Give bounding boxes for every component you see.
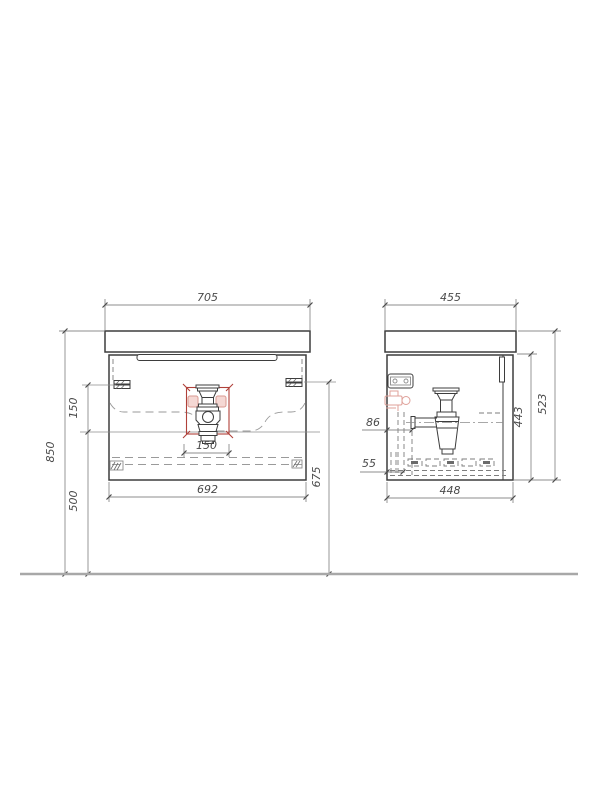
side-dim-cabinet-depth: 448 xyxy=(385,482,516,503)
side-wall-rail xyxy=(500,357,505,382)
dim-label-150-vertical: 150 xyxy=(67,398,80,419)
dim-label-692: 692 xyxy=(197,483,218,496)
dim-label-55: 55 xyxy=(362,457,376,470)
dim-label-705: 705 xyxy=(197,291,218,304)
front-basin-slot xyxy=(137,355,277,361)
front-dim-rail-to-floor: 675 xyxy=(310,380,332,577)
front-dim-overall-height: 850 xyxy=(44,329,104,577)
front-dim-cabinet-width: 692 xyxy=(107,482,309,502)
side-view: 455 448 443 523 xyxy=(360,291,561,503)
drain-mount-hole-left xyxy=(188,396,198,407)
side-countertop xyxy=(385,331,516,352)
side-dim-top-depth: 455 xyxy=(383,291,519,330)
dim-label-850: 850 xyxy=(44,442,57,463)
side-dim-overall-height: 523 xyxy=(518,329,561,483)
front-right-bracket xyxy=(286,379,302,387)
front-left-bracket xyxy=(114,381,130,389)
vanity-technical-drawing: 705 850 150 500 150 xyxy=(0,0,600,800)
dim-label-675: 675 xyxy=(310,467,323,488)
dim-label-150-horizontal: 150 xyxy=(196,439,217,452)
dim-label-523: 523 xyxy=(536,394,549,415)
dim-label-448: 448 xyxy=(440,484,461,497)
front-dim-top-width: 705 xyxy=(103,291,313,330)
side-dim-cabinet-height: 443 xyxy=(512,352,561,483)
dim-label-443: 443 xyxy=(512,407,525,428)
front-countertop xyxy=(105,331,310,352)
dim-label-86: 86 xyxy=(366,416,380,429)
drawing-sheet: 705 850 150 500 150 xyxy=(0,0,600,800)
dim-label-500: 500 xyxy=(67,491,80,512)
front-view: 705 850 150 500 150 xyxy=(44,291,336,577)
front-dim-bracket-drain: 150 500 xyxy=(67,383,91,577)
dim-label-455: 455 xyxy=(440,291,461,304)
side-wall-bracket xyxy=(388,374,413,388)
